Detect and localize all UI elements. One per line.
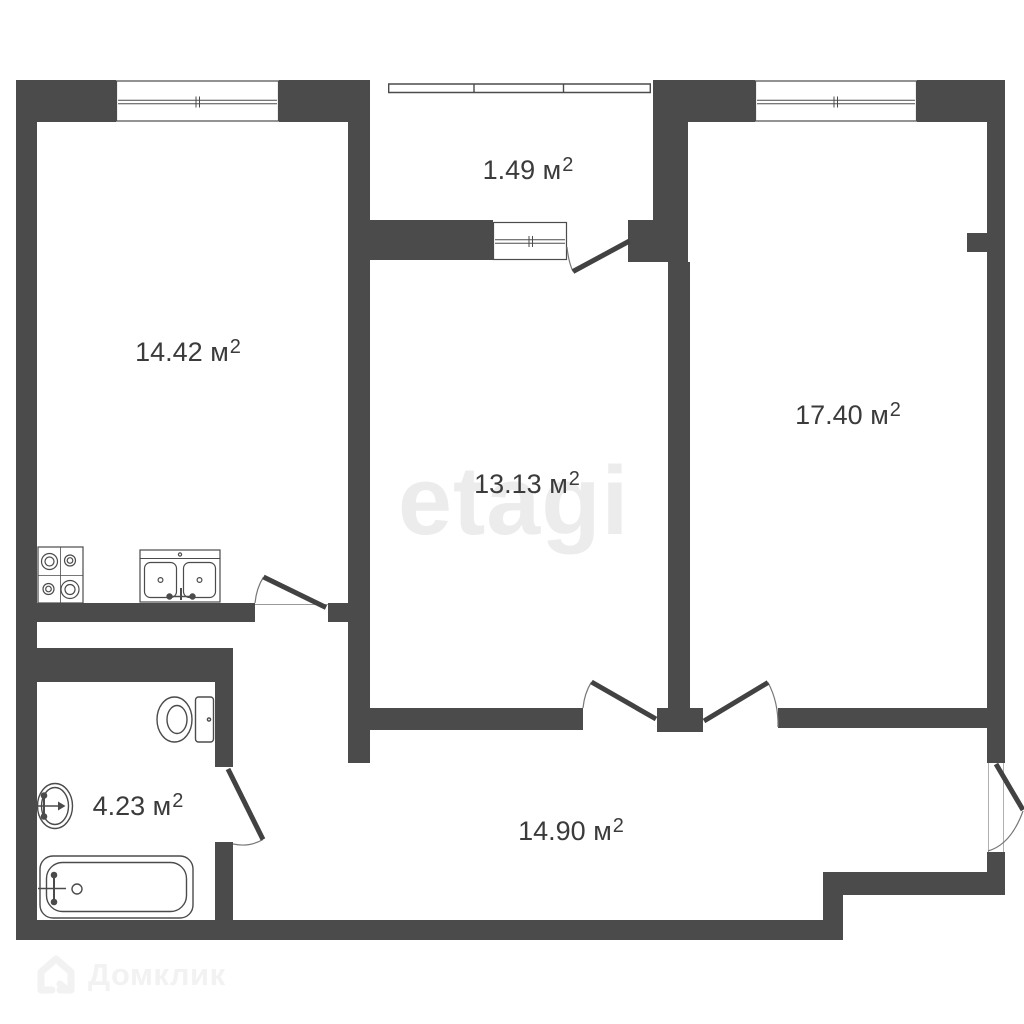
bathtub-icon [38,856,193,918]
area-value: 13.13 м [474,469,568,499]
area-label-bedroom-2: 17.40 м2 [795,397,901,431]
bathroom-door-icon [228,769,263,845]
kitchen-door-icon [255,577,328,608]
area-sup: 2 [613,815,624,837]
floor-plan: etagi Домклик 14.42 м2 1.49 м2 13.13 м2 … [0,0,1024,1024]
area-value: 14.42 м [135,337,229,367]
house-icon [36,954,76,996]
wash-basin-icon [37,784,73,829]
area-value: 14.90 м [518,816,612,846]
entrance-door-icon [988,763,1023,852]
kitchen-sink-icon [140,550,220,602]
window-bedroom2-icon [756,81,917,121]
area-value: 1.49 м [483,155,562,185]
window-kitchen-icon [117,81,279,121]
area-value: 17.40 м [795,400,889,430]
area-sup: 2 [562,154,573,176]
area-label-hallway: 14.90 м2 [518,813,624,847]
area-sup: 2 [172,790,183,812]
area-label-bathroom: 4.23 м2 [93,788,184,822]
window-balcony-icon [494,223,567,260]
area-sup: 2 [569,468,580,490]
bedroom1-door-icon [583,682,656,719]
area-value: 4.23 м [93,791,172,821]
area-label-balcony: 1.49 м2 [483,152,574,186]
area-sup: 2 [230,336,241,358]
etagi-watermark: etagi [398,448,629,555]
area-label-bedroom-1: 13.13 м2 [474,466,580,500]
area-sup: 2 [890,399,901,421]
domclick-watermark-text: Домклик [88,957,226,993]
balcony-door-icon [567,241,630,272]
bedroom2-door-icon [704,683,778,728]
toilet-icon [157,697,214,742]
domclick-watermark: Домклик [36,954,226,996]
balcony-glazing-icon [388,84,651,93]
area-label-kitchen-living: 14.42 м2 [135,334,241,368]
stove-icon [38,547,83,603]
